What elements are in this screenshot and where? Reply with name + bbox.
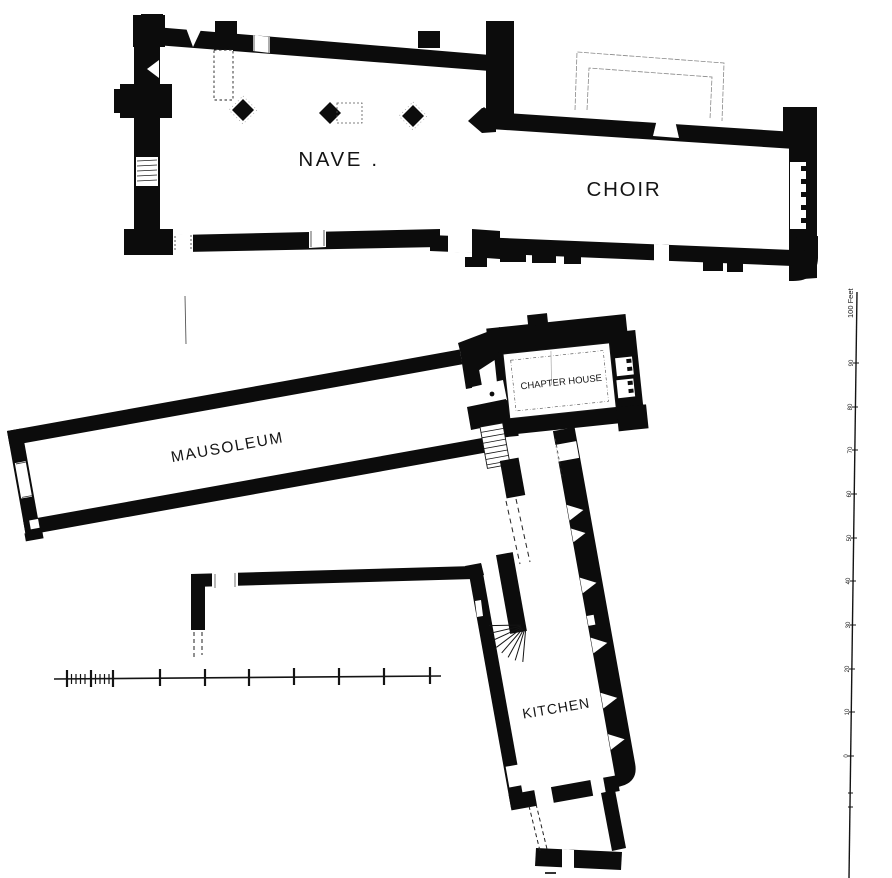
svg-text:100 Feet: 100 Feet	[846, 287, 855, 318]
svg-text:CHOIR: CHOIR	[586, 178, 661, 201]
svg-text:NAVE .: NAVE .	[298, 148, 379, 171]
